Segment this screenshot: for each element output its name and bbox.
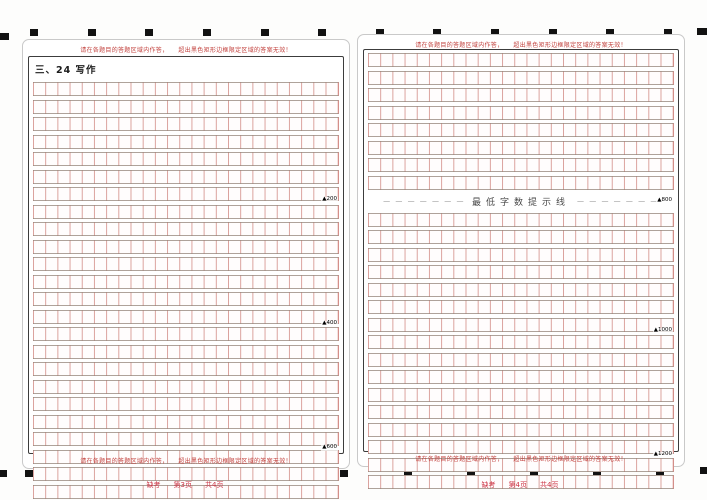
page-footer-left: 缺考 第3页 共4页 [105,480,265,490]
writing-grid-row [33,205,339,219]
timing-mark [203,29,211,36]
writing-grid-area: — — — — — — —最低字数提示线— — — — — — —▲800▲10… [368,53,674,489]
writing-grid-row [368,53,674,67]
timing-mark [318,29,326,36]
word-count-marker: ▲600 [321,445,338,451]
writing-grid-row [33,240,339,254]
page-number: 第3页 [174,480,192,490]
writing-grid-row [33,345,339,359]
edge-mark [0,470,7,477]
warning-part1: 请在各题目的答题区域内作答， [80,47,168,54]
scanned-answer-sheet: 请在各题目的答题区域内作答，超出黑色矩形边框限定区域的答案无效！ 三、24 写作… [0,0,707,500]
warning-part1: 请在各题目的答题区域内作答， [80,458,168,465]
writing-grid-row [368,213,674,227]
warning-part2: 超出黑色矩形边框限定区域的答案无效！ [513,456,626,463]
warning-part2: 超出黑色矩形边框限定区域的答案无效！ [178,458,291,465]
writing-grid-row [33,170,339,184]
writing-grid-row [368,123,674,137]
section-title: 三、24 写作 [33,60,339,82]
writing-grid-row [33,275,339,289]
answer-sheet-page-4: 请在各题目的答题区域内作答，超出黑色矩形边框限定区域的答案无效！ — — — —… [357,34,685,467]
writing-grid-row [368,88,674,102]
writing-grid-row [33,135,339,149]
page-footer-right: 缺考 第4页 共4页 [440,480,600,490]
dash-line: — — — — — — — [383,197,465,205]
warning-part2: 超出黑色矩形边框限定区域的答案无效！ [178,47,291,54]
writing-grid-row [33,222,339,236]
warning-part1: 请在各题目的答题区域内作答， [415,456,503,463]
writing-grid-row [368,265,674,279]
writing-grid-section: ▲1000▲1200 [368,213,674,490]
writing-grid-row [368,405,674,419]
writing-grid-row [368,423,674,437]
word-count-marker: ▲400 [321,321,338,327]
writing-grid-row [33,362,339,376]
writing-grid-row [368,230,674,244]
timing-mark [30,29,38,36]
writing-grid-row [33,82,339,96]
timing-mark [145,29,153,36]
page-total: 共4页 [540,480,558,490]
writing-grid-section: ▲200▲400▲600 [33,82,339,499]
writing-grid-row [33,117,339,131]
warning-part2: 超出黑色矩形边框限定区域的答案无效！ [513,42,626,49]
edge-mark [700,467,707,474]
warning-part1: 请在各题目的答题区域内作答， [415,42,503,49]
writing-grid-row [368,176,674,190]
writing-grid-row [368,106,674,120]
dash-line: — — — — — — — [577,197,659,205]
edge-mark [697,28,707,35]
timing-mark [261,29,269,36]
writing-grid-row [368,248,674,262]
warning-text-bottom: 请在各题目的答题区域内作答，超出黑色矩形边框限定区域的答案无效！ [358,454,684,463]
writing-grid-row [33,397,339,411]
writing-grid-section [368,53,674,190]
writing-grid-row [33,152,339,166]
writing-grid-row [368,158,674,172]
absent-label: 缺考 [147,480,161,490]
writing-grid-row [368,440,674,454]
warning-text-bottom: 请在各题目的答题区域内作答，超出黑色矩形边框限定区域的答案无效！ [23,456,349,465]
writing-grid-row [368,370,674,384]
writing-grid-row [368,335,674,349]
warning-text-top: 请在各题目的答题区域内作答，超出黑色矩形边框限定区域的答案无效！ [23,45,349,54]
writing-grid-row [368,71,674,85]
writing-grid-row [368,300,674,314]
writing-grid-row [368,353,674,367]
word-count-marker: ▲200 [321,197,338,203]
writing-grid-row [33,415,339,429]
absent-label: 缺考 [482,480,496,490]
answer-area-box: 三、24 写作 ▲200▲400▲600 [28,56,344,454]
answer-sheet-page-3: 请在各题目的答题区域内作答，超出黑色矩形边框限定区域的答案无效！ 三、24 写作… [22,39,350,469]
timing-mark [88,29,96,36]
writing-grid-row [33,100,339,114]
writing-grid-row [33,292,339,306]
word-count-marker: ▲1000 [653,328,673,334]
answer-area-box: — — — — — — —最低字数提示线— — — — — — —▲800▲10… [363,49,679,452]
writing-grid-row [33,467,339,481]
edge-mark [0,33,9,40]
writing-grid-row [368,318,674,332]
page-number: 第4页 [509,480,527,490]
writing-grid-row [33,310,339,324]
writing-grid-row [368,283,674,297]
writing-grid-row [33,327,339,341]
writing-grid-row [33,380,339,394]
writing-grid-row [368,141,674,155]
writing-grid-row [33,187,339,201]
timing-mark [340,470,348,477]
minimum-word-count-label: 最低字数提示线 [472,195,570,208]
writing-grid-row [33,432,339,446]
timing-mark [25,470,33,477]
word-count-marker: ▲800 [656,198,673,204]
writing-grid-row [33,257,339,271]
minimum-word-count-line: — — — — — — —最低字数提示线— — — — — — —▲800 [368,193,674,209]
writing-grid-row [368,388,674,402]
writing-grid-area: ▲200▲400▲600 [33,82,339,499]
warning-text-top: 请在各题目的答题区域内作答，超出黑色矩形边框限定区域的答案无效！ [358,40,684,49]
page-total: 共4页 [205,480,223,490]
